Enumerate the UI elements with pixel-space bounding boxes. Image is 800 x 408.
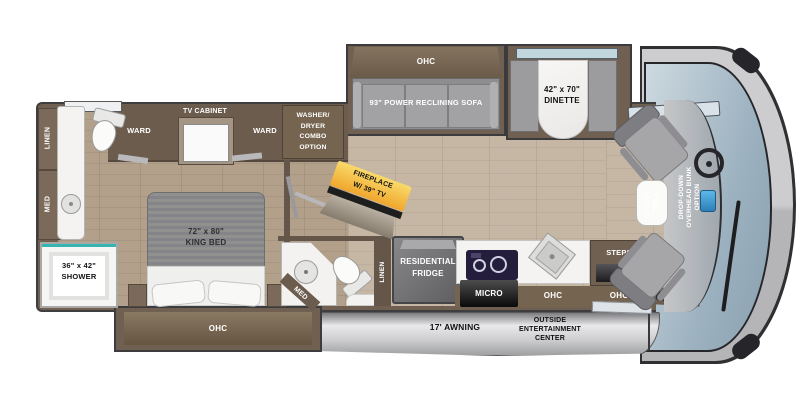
midbath-sink-drain xyxy=(304,270,308,274)
cooktop-display xyxy=(471,253,481,258)
sofa-label: 93" POWER RECLINING SOFA xyxy=(352,98,500,107)
med-rear-label: MED xyxy=(45,196,54,212)
cooktop xyxy=(466,250,518,280)
fridge-label: RESIDENTIAL FRIDGE xyxy=(392,256,464,279)
sofa-ohc-label: OHC xyxy=(390,57,462,67)
awning-end-line xyxy=(648,313,650,351)
ward-left-label: WARD xyxy=(110,126,168,135)
kitchen-ohc-label: OHC xyxy=(518,291,588,301)
king-bed-label: 72" x 80" KING BED xyxy=(147,226,265,248)
pillow xyxy=(207,280,262,308)
steering-hub xyxy=(706,161,712,167)
bedroom-divider-wall xyxy=(284,160,290,242)
cooktop-burner xyxy=(490,256,507,273)
tv-screen xyxy=(183,124,229,162)
drop-down-bunk-label: DROP-DOWN OVERHEAD BUNK OPTION xyxy=(678,166,702,227)
awning-label: 17' AWNING xyxy=(400,322,510,332)
cockpit-table-label: COCKPIT TABLE xyxy=(644,187,660,218)
washer-dryer-label: WASHER/ DRYER COMBO OPTION xyxy=(282,111,344,153)
dash-screen xyxy=(700,190,716,212)
shower-teal-edge xyxy=(42,244,116,247)
midbath-sink xyxy=(294,260,318,284)
rear-sink xyxy=(61,194,81,214)
tv-cabinet-label: TV CABINET xyxy=(168,108,242,116)
fridge-top-highlight xyxy=(400,240,456,249)
nightstand-left xyxy=(128,284,147,307)
shower-label: 36" x 42" SHOWER xyxy=(40,260,118,283)
awning-bar xyxy=(296,312,660,356)
linen-mid-label: LINEN xyxy=(379,262,387,283)
outside-entertainment-label: OUTSIDE ENTERTAINMENT CENTER xyxy=(498,316,602,343)
bed-ohc-label: OHC xyxy=(182,324,254,334)
micro-label: MICRO xyxy=(460,289,518,299)
rear-vanity xyxy=(57,106,85,240)
dinette-label: 42" x 70" DINETTE xyxy=(528,85,596,107)
cooktop-burner xyxy=(473,259,486,272)
tv-cabinet xyxy=(178,117,234,165)
linen-rear-label: LINEN xyxy=(45,127,54,150)
floorplan-canvas: 17' AWNING OUTSIDE ENTERTAINMENT CENTER … xyxy=(0,0,800,408)
dinette-window xyxy=(516,48,618,59)
rear-sink-drain xyxy=(69,202,73,206)
